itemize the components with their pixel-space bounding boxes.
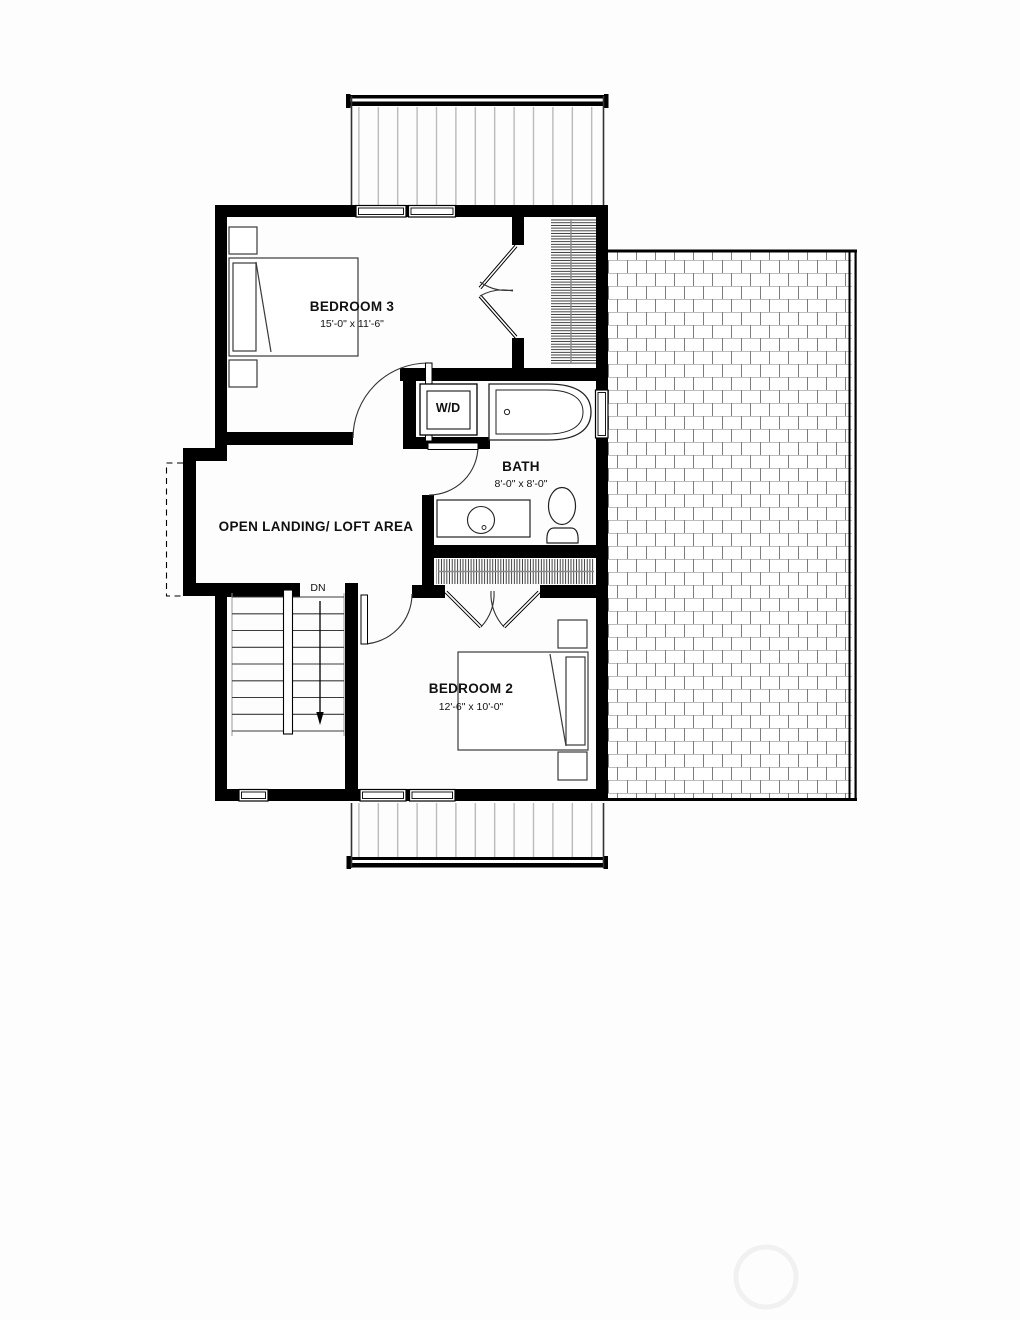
wall-segment	[215, 432, 353, 445]
brick-area-top-edge	[608, 250, 857, 253]
room-dims-bedroom3: 15'-0" x 11'-6"	[320, 318, 384, 330]
deck-top	[346, 94, 609, 205]
deck-top-decking	[351, 107, 604, 205]
deck-bottom-rail-line-2	[348, 863, 607, 868]
window	[409, 206, 456, 218]
deck-top-rail-line-2	[347, 102, 608, 107]
brick-area-rail-line-1	[849, 250, 851, 801]
deck-bottom-rail-post-left	[347, 856, 352, 869]
wall-segment	[540, 585, 596, 598]
sink-drain	[482, 526, 486, 530]
toilet	[547, 488, 578, 544]
room-label-landing: OPEN LANDING/ LOFT AREA	[219, 519, 414, 534]
bedroom3-closet-hatch	[551, 218, 596, 365]
brick-area-rail-line-2	[855, 250, 857, 801]
nightstand	[229, 360, 257, 387]
wall-segment	[596, 205, 608, 801]
vanity-sink	[437, 500, 530, 537]
wall-segment	[512, 217, 524, 245]
tub-drain	[504, 409, 509, 414]
bed-headboard	[233, 263, 256, 351]
brick-pattern-fill	[608, 252, 852, 800]
wall-segment	[215, 583, 227, 801]
bathtub	[489, 384, 591, 440]
window	[356, 206, 406, 218]
nightstand	[229, 227, 257, 254]
roof-brick-area	[608, 250, 857, 802]
wall-segment	[183, 448, 196, 596]
bed-headboard	[566, 657, 585, 745]
window	[239, 790, 268, 802]
floor-plan-page: BEDROOM 3 15'-0" x 11'-6" BATH 8'-0" x 8…	[0, 0, 1020, 1320]
wall-segment	[215, 205, 227, 448]
wall-segment	[345, 583, 358, 790]
washer-dryer-label: W/D	[436, 401, 460, 415]
door-leaf	[428, 443, 478, 450]
wall-segment	[422, 545, 608, 558]
room-label-bath: BATH	[502, 459, 540, 474]
deck-top-rail-post-right	[604, 94, 609, 108]
floor-plan-drawing: BEDROOM 3 15'-0" x 11'-6" BATH 8'-0" x 8…	[0, 0, 1020, 1320]
room-dims-bedroom2: 12'-6" x 10'-0"	[439, 701, 504, 713]
room-label-bedroom2: BEDROOM 2	[429, 681, 513, 696]
room-dims-bath: 8'-0" x 8'-0"	[495, 478, 548, 490]
wall-segment	[512, 338, 524, 372]
deck-bottom	[347, 803, 609, 869]
wall-segment	[412, 585, 445, 598]
deck-top-rail-post-left	[346, 94, 351, 108]
nightstand	[558, 752, 587, 780]
room-label-bedroom3: BEDROOM 3	[310, 299, 395, 314]
window	[596, 390, 609, 438]
brick-area-bottom-edge	[608, 798, 857, 801]
stair-center-rail	[284, 590, 293, 734]
deck-top-rail-line-1	[347, 95, 608, 99]
wall-segment	[403, 381, 416, 439]
deck-bottom-decking	[351, 803, 604, 857]
deck-bottom-rail-line-1	[348, 857, 607, 860]
door-leaf	[361, 595, 368, 644]
nightstand	[558, 620, 587, 648]
stair-direction-label: DN	[310, 582, 325, 594]
window	[410, 790, 456, 802]
window	[360, 790, 406, 802]
